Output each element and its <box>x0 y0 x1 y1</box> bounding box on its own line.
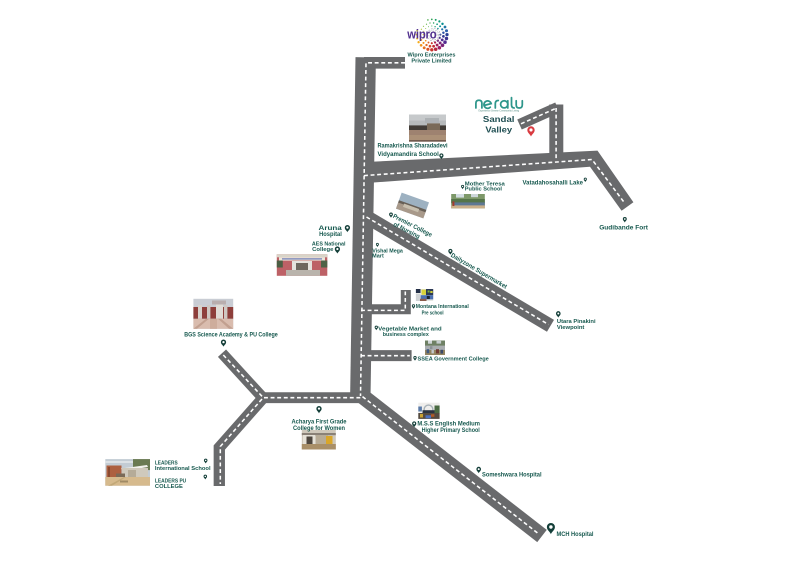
svg-text:College for Women: College for Women <box>293 425 345 432</box>
svg-text:business complex: business complex <box>383 332 430 338</box>
svg-text:SSEA Government College: SSEA Government College <box>418 357 490 363</box>
svg-text:Vatadahosahalli Lake: Vatadahosahalli Lake <box>523 180 584 187</box>
svg-text:Gudibande Fort: Gudibande Fort <box>599 225 648 232</box>
svg-text:College: College <box>312 247 334 253</box>
svg-text:BGS Science Academy & PU Colle: BGS Science Academy & PU College <box>184 331 278 338</box>
svg-text:Private Limited: Private Limited <box>411 58 452 64</box>
svg-text:Pre school: Pre school <box>422 310 444 316</box>
svg-text:Someshwara Hospital: Someshwara Hospital <box>482 471 542 478</box>
svg-text:Valley: Valley <box>485 126 512 135</box>
svg-text:Vidyamandira School: Vidyamandira School <box>378 151 440 158</box>
svg-text:Montana International: Montana International <box>416 304 469 310</box>
svg-text:Viewpoint: Viewpoint <box>557 325 585 331</box>
svg-text:Sandal: Sandal <box>483 115 515 124</box>
svg-text:wipro: wipro <box>406 28 437 42</box>
svg-text:Mart: Mart <box>372 254 384 260</box>
svg-text:Hospital: Hospital <box>319 231 342 238</box>
svg-text:Public School: Public School <box>465 187 503 193</box>
svg-text:Experience Serene Community Li: Experience Serene Community Living <box>479 109 520 112</box>
svg-text:Ramakrishna Sharadadevi: Ramakrishna Sharadadevi <box>378 143 448 150</box>
svg-text:MCH Hospital: MCH Hospital <box>557 531 594 538</box>
svg-text:Higher Primary School: Higher Primary School <box>422 427 480 434</box>
svg-text:COLLEGE: COLLEGE <box>155 484 183 490</box>
svg-text:International School: International School <box>155 466 211 472</box>
